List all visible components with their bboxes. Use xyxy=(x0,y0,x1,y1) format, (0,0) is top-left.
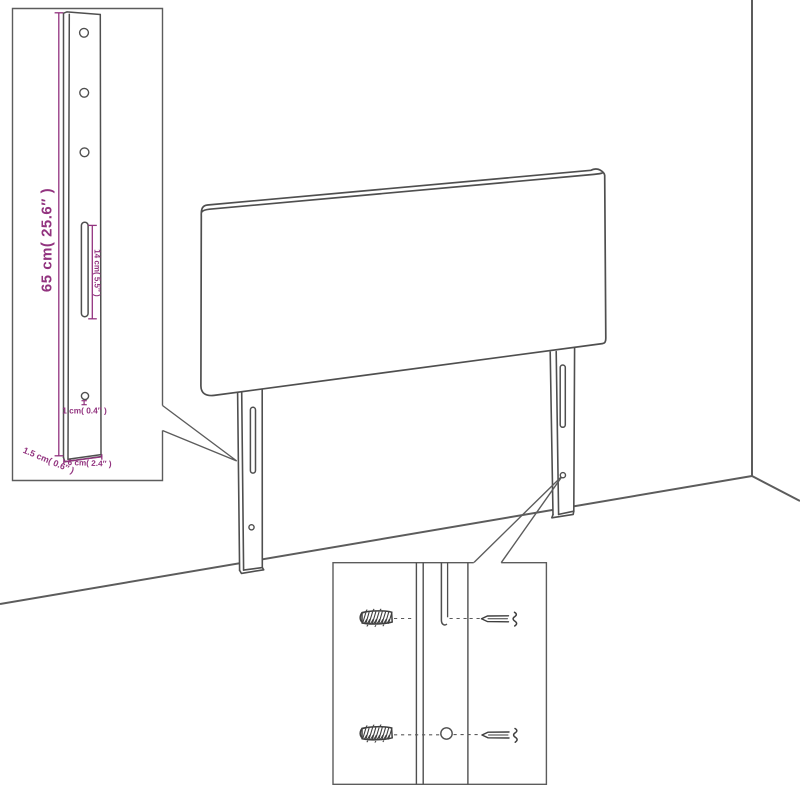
svg-text:1 cm( 0.4″ ): 1 cm( 0.4″ ) xyxy=(62,406,107,416)
svg-text:65 cm( 25.6″ ): 65 cm( 25.6″ ) xyxy=(38,188,55,292)
svg-text:6 cm( 2.4″ ): 6 cm( 2.4″ ) xyxy=(67,458,112,469)
svg-text:14 cm( 5.5″ ): 14 cm( 5.5″ ) xyxy=(93,249,102,297)
